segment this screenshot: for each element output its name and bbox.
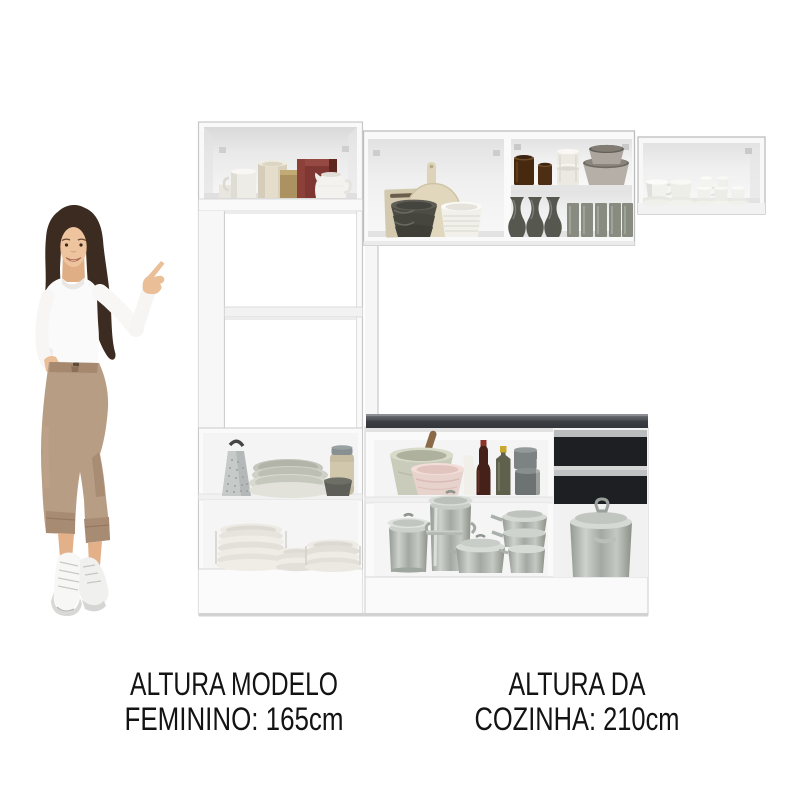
- svg-text:COZINHA: 210cm: COZINHA: 210cm: [475, 701, 680, 737]
- svg-text:FEMININO: 165cm: FEMININO: 165cm: [125, 701, 344, 737]
- svg-text:ALTURA MODELO: ALTURA MODELO: [130, 666, 338, 702]
- svg-text:ALTURA DA: ALTURA DA: [509, 666, 647, 702]
